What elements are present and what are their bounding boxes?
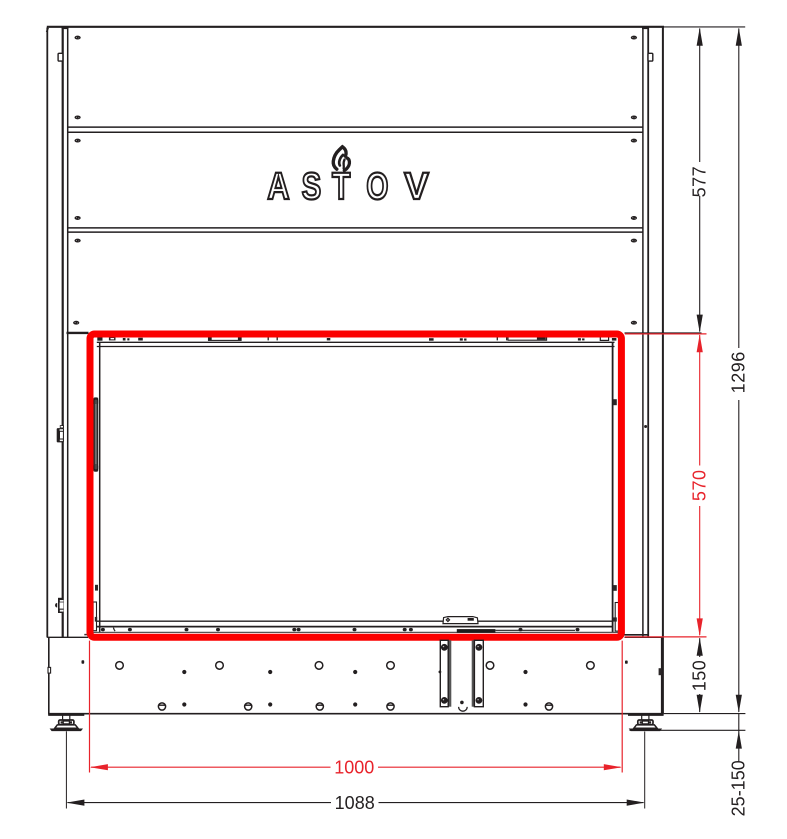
svg-text:A: A [267,166,289,208]
svg-text:V: V [404,166,429,208]
svg-text:1000: 1000 [334,758,374,778]
svg-text:O: O [366,166,388,208]
svg-text:25-150: 25-150 [729,760,749,816]
svg-text:570: 570 [690,470,710,502]
svg-text:1088: 1088 [335,793,375,813]
svg-text:T: T [332,166,350,208]
svg-text:150: 150 [690,660,710,692]
svg-text:577: 577 [690,166,710,198]
svg-text:1296: 1296 [729,351,749,393]
svg-text:S: S [302,166,322,208]
